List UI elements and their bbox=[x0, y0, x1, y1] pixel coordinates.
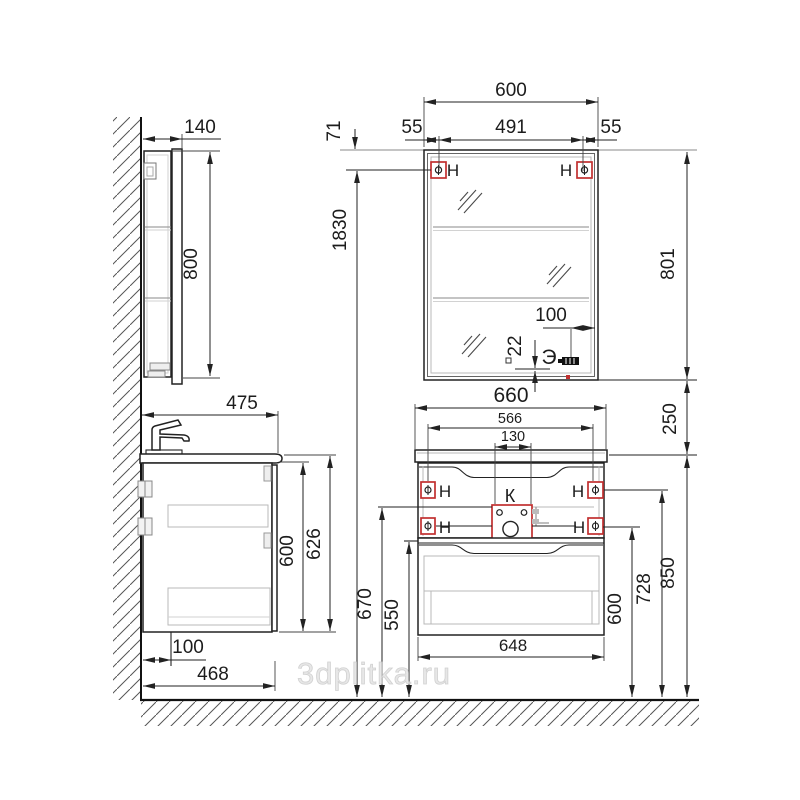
dim-label: 801 bbox=[658, 248, 679, 280]
vanity-side-view bbox=[138, 420, 282, 666]
dim-vanity-depth: 475 bbox=[142, 393, 278, 453]
faucet bbox=[152, 420, 189, 450]
hanger-label-upper-right: Н bbox=[572, 482, 584, 501]
dim-label: 728 bbox=[634, 573, 655, 605]
dim-label: 850 bbox=[658, 557, 679, 589]
dim-mirror-to-vanity-gap: 250 bbox=[660, 381, 687, 454]
hinge-detail bbox=[144, 163, 156, 179]
dim-cabinet-depth: 140 bbox=[143, 117, 221, 149]
dim-label: 1830 bbox=[330, 209, 351, 251]
floor-hatch bbox=[141, 701, 699, 726]
vanity-mount-lower-right bbox=[588, 518, 603, 534]
dim-label: 71 bbox=[324, 120, 345, 141]
dim-label: 491 bbox=[495, 117, 527, 138]
dim-label: 140 bbox=[184, 117, 216, 138]
dim-label: 55 bbox=[401, 117, 422, 138]
installation-diagram: Н Н Э Н bbox=[0, 0, 800, 800]
dim-lower-mount-height: 600 bbox=[605, 528, 632, 697]
dim-drain-from-wall: 100 bbox=[143, 637, 206, 660]
dim-vanity-body-depth: 468 bbox=[143, 661, 275, 691]
dim-mirror-mount-left: 55 bbox=[401, 117, 439, 140]
countertop-side bbox=[140, 454, 282, 463]
drain-box-label: К bbox=[505, 486, 516, 506]
hanger-label-lower-left: Н bbox=[439, 518, 451, 537]
dim-mirror-height: 801 bbox=[658, 152, 687, 379]
socket-label: Э bbox=[541, 346, 556, 369]
technical-drawing-page: Н Н Э Н bbox=[0, 0, 800, 800]
dim-label: 600 bbox=[605, 593, 626, 625]
hanger-label-mirror-right: Н bbox=[560, 161, 572, 180]
dim-label: 626 bbox=[304, 528, 325, 560]
dim-mount-total-height: 1830 bbox=[330, 171, 357, 697]
dim-label: 55 bbox=[600, 117, 621, 138]
vanity-mount-upper-right bbox=[588, 482, 603, 498]
dim-label: 670 bbox=[355, 588, 376, 620]
hanger-label-mirror-left: Н bbox=[447, 161, 459, 180]
dim-label: 566 bbox=[498, 411, 522, 427]
drawer-front-edge-1 bbox=[264, 466, 271, 481]
cabinet-side-body bbox=[144, 151, 171, 377]
dim-label: 250 bbox=[660, 403, 681, 435]
dim-label: 600 bbox=[277, 535, 298, 567]
lower-drawer-box bbox=[418, 538, 604, 635]
dim-mirror-top-to-mount: 71 bbox=[324, 120, 355, 149]
vanity-mount-lower-left bbox=[421, 518, 435, 534]
dim-label: 468 bbox=[197, 664, 229, 685]
wall-hatch bbox=[113, 117, 141, 700]
dim-label: 475 bbox=[226, 393, 258, 414]
damper-detail bbox=[150, 363, 170, 370]
hanger-label-lower-right: Н bbox=[573, 518, 585, 537]
wall-section bbox=[113, 117, 141, 700]
vanity-mount-upper-left bbox=[421, 482, 435, 498]
mirror-mount-right bbox=[577, 162, 592, 178]
mirror-mount-left bbox=[431, 162, 446, 178]
dim-label: 648 bbox=[499, 636, 527, 655]
dim-label: 100 bbox=[172, 637, 204, 658]
floor-section bbox=[140, 700, 699, 726]
damper-detail-2 bbox=[148, 371, 165, 377]
dim-upper-mount-height: 728 bbox=[634, 491, 662, 697]
dim-label: 100 bbox=[535, 305, 567, 326]
vanity-front-view: Н Н Н Н К bbox=[415, 450, 607, 635]
watermark: 3dplitka.ru bbox=[297, 656, 451, 691]
vanity-side-body bbox=[143, 463, 272, 632]
dim-label: 800 bbox=[181, 248, 202, 280]
drain-point-dot bbox=[566, 375, 570, 379]
dim-label: 130 bbox=[501, 429, 525, 445]
mirror-cabinet-side-view bbox=[144, 149, 182, 384]
dim-label: 550 bbox=[382, 599, 403, 631]
drawer-front-edge-2 bbox=[264, 533, 271, 548]
hanger-label-upper-left: Н bbox=[439, 482, 451, 501]
dim-mirror-mount-right: 55 bbox=[583, 117, 622, 140]
dim-label: 600 bbox=[495, 80, 527, 101]
dim-label: 660 bbox=[493, 384, 528, 407]
countertop-front bbox=[415, 450, 607, 462]
dim-label: 22 bbox=[505, 335, 526, 356]
